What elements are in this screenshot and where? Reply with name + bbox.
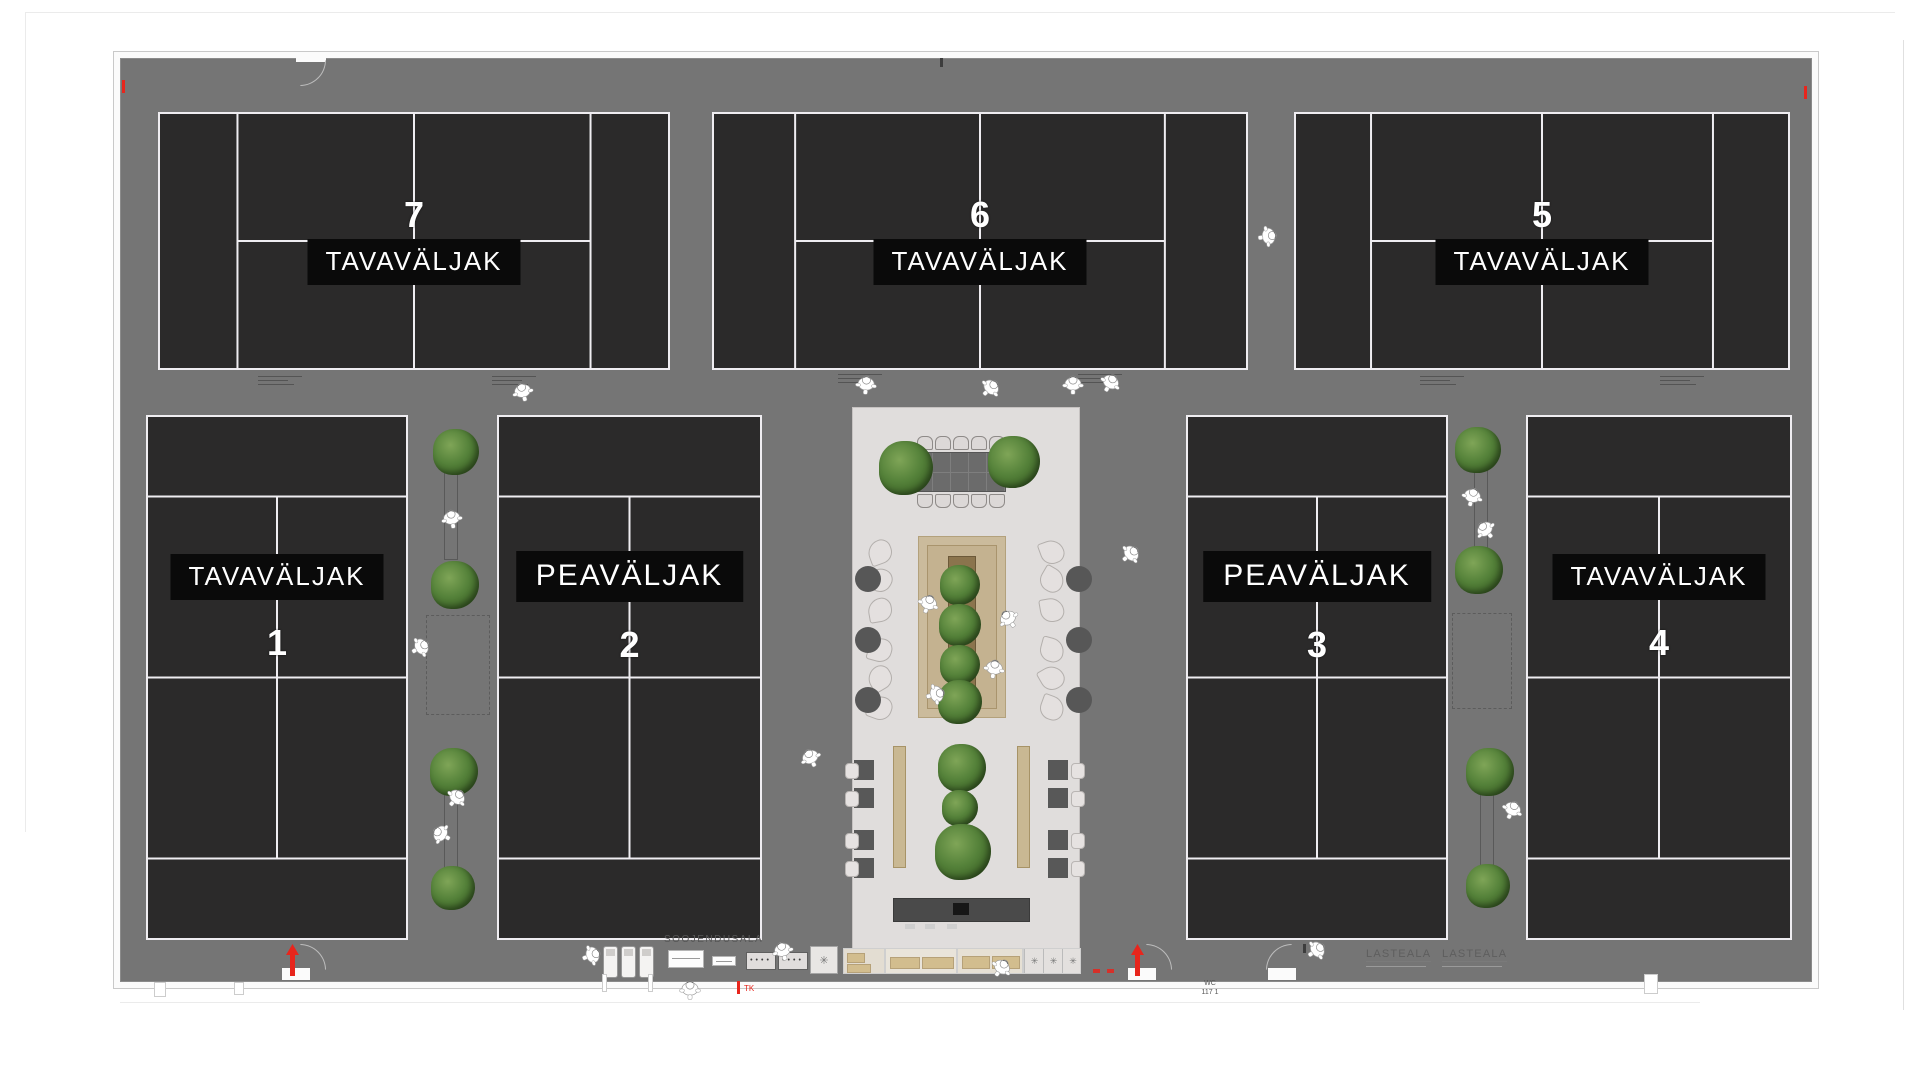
court-3-number: 3 bbox=[1307, 626, 1327, 664]
side-table bbox=[1066, 687, 1092, 713]
cafe-chair bbox=[1071, 763, 1085, 779]
kids-area-label-2: LASTEALA bbox=[1442, 948, 1507, 962]
wc-room-number: 117 1 bbox=[1190, 988, 1230, 997]
court-6-name: TAVAVÄLJAK bbox=[873, 239, 1086, 285]
sheet-frame-right bbox=[1903, 40, 1904, 1010]
wall-stub bbox=[154, 982, 166, 997]
side-table bbox=[1066, 566, 1092, 592]
cafe-table bbox=[1048, 788, 1068, 808]
meeting-chair bbox=[971, 436, 987, 450]
dimension-note bbox=[258, 376, 302, 388]
dimension-note bbox=[1660, 376, 1704, 388]
floor-plan-sheet: ✳ ✳ ✳ •••• •••• ✳ SOOJENDUSALA LASTEALA … bbox=[0, 0, 1920, 1080]
entrance-arrow-bottom bbox=[1131, 944, 1144, 981]
sheet-frame-left bbox=[25, 12, 26, 832]
cafe-chair bbox=[845, 763, 859, 779]
court-3 bbox=[1186, 415, 1448, 940]
court-3-label-group: PEAVÄLJAK3 bbox=[1203, 551, 1431, 664]
side-table bbox=[855, 687, 881, 713]
cafe-chair bbox=[1071, 791, 1085, 807]
court-5-number: 5 bbox=[1532, 196, 1552, 234]
fire-exit-tick-right bbox=[1804, 86, 1807, 99]
exterior-pillar bbox=[1644, 974, 1658, 994]
court-4-name: TAVAVÄLJAK bbox=[1552, 554, 1765, 600]
court-1-label-group: TAVAVÄLJAK1 bbox=[170, 554, 383, 662]
room-wc: ✳ ✳ ✳ bbox=[1023, 948, 1081, 974]
court-1-name: TAVAVÄLJAK bbox=[170, 554, 383, 600]
person-icon bbox=[854, 370, 878, 401]
cafe-chair bbox=[1071, 861, 1085, 877]
wall-tick-top bbox=[940, 58, 943, 67]
wood-bench bbox=[893, 746, 906, 868]
court-2 bbox=[497, 415, 762, 940]
person-icon bbox=[1062, 371, 1084, 400]
wall-tick-bottom bbox=[1303, 944, 1306, 953]
cafe-table bbox=[1048, 858, 1068, 878]
room-storage bbox=[843, 948, 885, 974]
counter-stool bbox=[947, 924, 957, 929]
cafe-table bbox=[1048, 760, 1068, 780]
court-4 bbox=[1526, 415, 1792, 940]
court-6-number: 6 bbox=[970, 196, 990, 234]
exit-bar bbox=[737, 981, 740, 994]
red-dash-1 bbox=[1093, 969, 1100, 973]
wc-room-label: WC 117 1 bbox=[1190, 979, 1230, 997]
warmup-area-label: SOOJENDUSALA bbox=[664, 934, 763, 945]
person-icon bbox=[439, 503, 466, 535]
fire-exit-tick-left bbox=[122, 80, 125, 93]
wall-stub bbox=[234, 982, 244, 995]
wc-stall-1: ✳ bbox=[1024, 949, 1044, 973]
court-4-label-group: TAVAVÄLJAK4 bbox=[1552, 554, 1765, 662]
cafe-chair bbox=[1071, 833, 1085, 849]
court-5-name: TAVAVÄLJAK bbox=[1435, 239, 1648, 285]
exit-label: TK bbox=[744, 984, 754, 993]
cafe-chair bbox=[845, 833, 859, 849]
treadmill-icon bbox=[621, 946, 636, 978]
court-6-label-group: 6TAVAVÄLJAK bbox=[873, 196, 1086, 285]
court-1 bbox=[146, 415, 408, 940]
reception-counter bbox=[893, 898, 1030, 922]
dimension-note bbox=[1420, 376, 1464, 388]
wall-stub bbox=[648, 974, 653, 992]
court-2-number: 2 bbox=[619, 626, 639, 664]
counter-screen bbox=[953, 903, 969, 915]
kids-area-subtext-2 bbox=[1442, 966, 1502, 967]
wood-bench bbox=[1017, 746, 1030, 868]
court-4-number: 4 bbox=[1649, 624, 1669, 662]
reserved-zone bbox=[1452, 613, 1512, 709]
court-2-label-group: PEAVÄLJAK2 bbox=[516, 551, 744, 664]
meeting-chair bbox=[917, 494, 933, 508]
entrance-arrow-left bbox=[286, 944, 299, 981]
wc-stall-2: ✳ bbox=[1043, 949, 1063, 973]
meeting-chair bbox=[953, 436, 969, 450]
court-7-name: TAVAVÄLJAK bbox=[307, 239, 520, 285]
sheet-ground-line bbox=[120, 1002, 1700, 1003]
equipment-sign bbox=[668, 950, 704, 968]
room-changing-1 bbox=[885, 948, 957, 974]
wall-stub bbox=[602, 974, 607, 992]
sheet-frame-top bbox=[25, 12, 1895, 13]
side-table bbox=[855, 627, 881, 653]
side-table bbox=[855, 566, 881, 592]
wc-room-name: WC bbox=[1190, 979, 1230, 988]
kids-area-subtext-1 bbox=[1366, 966, 1426, 967]
court-7-number: 7 bbox=[404, 196, 424, 234]
floor-plan: ✳ ✳ ✳ •••• •••• ✳ SOOJENDUSALA LASTEALA … bbox=[0, 0, 1920, 1080]
wc-stall-3: ✳ bbox=[1062, 949, 1083, 973]
cafe-table bbox=[1048, 830, 1068, 850]
court-5-label-group: 5TAVAVÄLJAK bbox=[1435, 196, 1648, 285]
cafe-chair bbox=[845, 791, 859, 807]
court-7-label-group: 7TAVAVÄLJAK bbox=[307, 196, 520, 285]
cafe-chair bbox=[845, 861, 859, 877]
red-dash-2 bbox=[1107, 969, 1114, 973]
equipment-mat: ✳ bbox=[810, 946, 838, 974]
kids-area-label-1: LASTEALA bbox=[1366, 948, 1431, 962]
person-icon bbox=[679, 976, 701, 1005]
court-1-number: 1 bbox=[267, 624, 287, 662]
equipment-sign-small bbox=[712, 956, 736, 966]
reserved-zone bbox=[426, 615, 490, 715]
meeting-chair bbox=[953, 494, 969, 508]
meeting-chair bbox=[935, 494, 951, 508]
meeting-chair bbox=[935, 436, 951, 450]
counter-stool bbox=[905, 924, 915, 929]
side-table bbox=[1066, 627, 1092, 653]
court-2-name: PEAVÄLJAK bbox=[516, 551, 744, 602]
meeting-chair bbox=[971, 494, 987, 508]
counter-stool bbox=[925, 924, 935, 929]
court-3-name: PEAVÄLJAK bbox=[1203, 551, 1431, 602]
meeting-chair bbox=[989, 494, 1005, 508]
